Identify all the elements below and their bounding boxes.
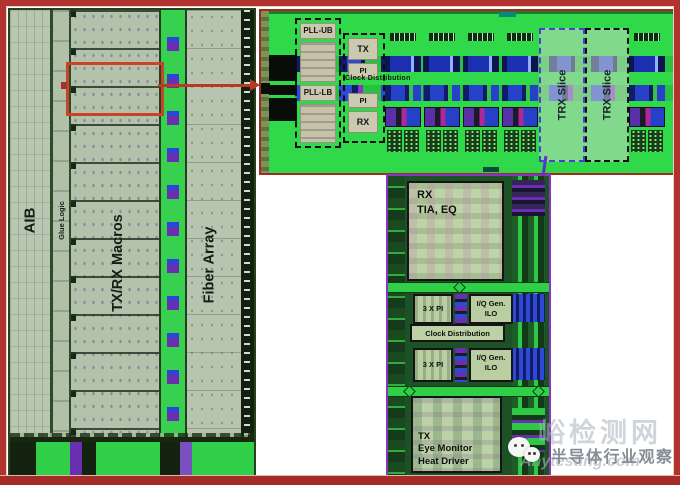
- txrx-dashed-column: TX PI PI RX: [343, 33, 385, 143]
- iq-gen-row1-block: I/Q Gen. ILO: [469, 294, 513, 324]
- zoom-callout-line: [158, 84, 252, 87]
- tx-eyemonitor-block: TX Eye Monitor Heat Driver: [411, 396, 502, 473]
- fiber-array-label: Fiber Array: [201, 227, 217, 304]
- slice-bus-upper: [388, 282, 549, 293]
- trx-slice-detail-panel: RX TIA, EQ 3 X PI I/Q Gen. ILO Clock Dis…: [386, 174, 551, 481]
- die-bottom-strip: [10, 437, 254, 476]
- bank-clock-distribution-label: Clock Distribution: [345, 75, 465, 82]
- trx-unit: [424, 33, 460, 153]
- aib-label: AIB: [22, 207, 39, 233]
- trx-unit: [385, 33, 421, 153]
- slice-clock-distribution-bar: Clock Distribution: [410, 324, 505, 342]
- slice-right-pad-row2: [512, 348, 545, 380]
- iq-gen-row2-block: I/Q Gen. ILO: [469, 348, 513, 382]
- trx-slice-right-box: TRX Slice: [585, 28, 629, 162]
- fiber-coupler-block: [269, 55, 297, 121]
- txrx-macros-label-wrap: TX/RX Macros: [76, 165, 160, 360]
- aib-label-wrap: AIB: [10, 140, 50, 300]
- iq-gen-row1-line2: ILO: [471, 309, 511, 319]
- slice-mid-stripe-row1: [455, 294, 467, 324]
- tx-eyemonitor-label: TX Eye Monitor Heat Driver: [418, 431, 472, 468]
- pi3x-row2-block: 3 X PI: [413, 348, 453, 382]
- glue-logic-label: Glue Logic: [57, 201, 66, 240]
- pll-dashed-box: PLL-UB PLL-LB: [295, 18, 341, 148]
- slice-left-circuit-strip: [388, 176, 405, 479]
- iq-gen-row2-line2: ILO: [471, 363, 511, 373]
- figure-stage: AIB Glue Logic TX/RX Macros Fiber Array …: [0, 0, 680, 485]
- pi-bottom-label: PI: [348, 93, 378, 108]
- fiber-coupler-stub: [261, 83, 270, 94]
- zoom-callout-arrow-icon: [250, 79, 260, 91]
- zoom-callout-rect: [66, 62, 164, 116]
- rx-tia-eq-block: RX TIA, EQ: [407, 181, 504, 281]
- wechat-bubble-small: [524, 447, 540, 462]
- rx-tia-eq-label-line2: TIA, EQ: [417, 203, 502, 218]
- slice-right-pad-row1: [512, 294, 545, 322]
- trx-unit: [502, 33, 538, 153]
- fiber-array-label-wrap: Fiber Array: [178, 175, 240, 355]
- trx-slice-left-box: TRX Slice: [539, 28, 585, 162]
- pi3x-row1-block: 3 X PI: [413, 294, 453, 324]
- wechat-icon: [508, 437, 548, 471]
- rx-label: RX: [348, 111, 378, 133]
- pll-ub-label: PLL-UB: [300, 23, 336, 39]
- trx-unit: [629, 33, 665, 153]
- trx-slice-right-label: TRX Slice: [601, 70, 613, 121]
- txrx-macros-label: TX/RX Macros: [110, 214, 126, 312]
- trx-unit: [463, 33, 499, 153]
- slice-mid-stripe-row2: [455, 348, 467, 382]
- iq-gen-row1-line1: I/Q Gen.: [471, 299, 511, 309]
- pll-lb-label: PLL-LB: [300, 85, 336, 101]
- trx-slice-left-label: TRX Slice: [556, 70, 568, 121]
- slice-right-purple-block: [512, 180, 545, 216]
- iq-gen-row2-line1: I/Q Gen.: [471, 353, 511, 363]
- rx-tia-eq-label-line1: RX: [417, 188, 502, 203]
- trx-bank-zoom-panel: PLL-UB PLL-LB TX PI PI RX Clock Distribu…: [259, 9, 677, 175]
- bank-bottom-marker: [483, 167, 499, 172]
- figure-red-frame-bottom: [0, 475, 680, 485]
- zoom-callout-tick: [61, 82, 67, 89]
- tx-label: TX: [348, 38, 378, 60]
- glue-logic-label-wrap: Glue Logic: [53, 150, 70, 290]
- account-name-watermark: 半导体行业观察: [551, 443, 674, 467]
- bank-top-edge: [269, 11, 675, 14]
- pll-lb-block: [300, 104, 336, 144]
- pll-ub-block: [300, 42, 336, 82]
- bank-teal-marker: [499, 12, 516, 17]
